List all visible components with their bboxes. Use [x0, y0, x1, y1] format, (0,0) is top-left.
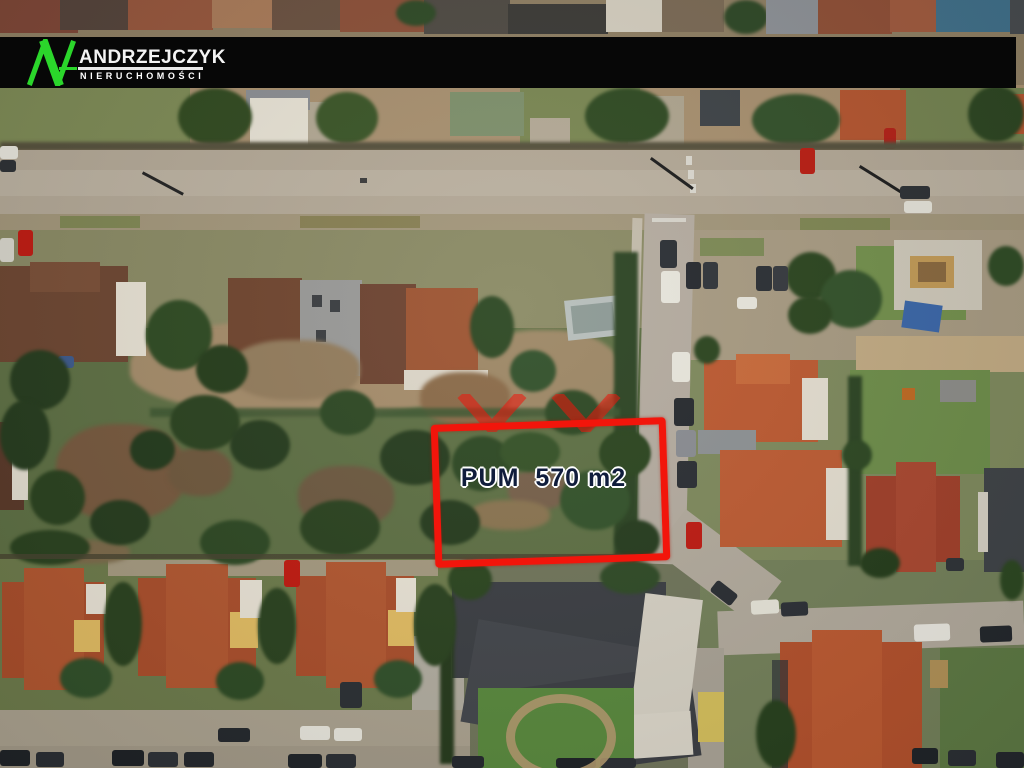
roof [508, 4, 608, 34]
skylight [330, 300, 340, 312]
tree [300, 500, 380, 555]
tree [788, 296, 832, 334]
roof-dark [984, 468, 1024, 572]
tree [842, 440, 872, 470]
car [912, 748, 938, 764]
path [530, 118, 570, 144]
roof [60, 0, 130, 30]
shed [940, 380, 976, 402]
wall [396, 578, 416, 612]
car [677, 461, 697, 488]
facade [388, 610, 414, 646]
company-subtitle: NIERUCHOMOŚCI [80, 72, 204, 81]
car [703, 262, 718, 289]
car [676, 430, 696, 457]
car [686, 522, 702, 549]
roof [812, 630, 882, 768]
car [284, 560, 300, 587]
roof [1010, 0, 1024, 34]
roof [700, 90, 740, 126]
roof [450, 92, 524, 136]
car [36, 752, 64, 767]
tree [104, 582, 142, 666]
car [756, 266, 772, 291]
pallet [930, 660, 948, 688]
aerial-photo [0, 0, 1024, 768]
car [288, 754, 322, 768]
car [18, 230, 33, 256]
roof [936, 0, 1012, 32]
roof [272, 0, 342, 30]
car [674, 398, 694, 426]
tree [1000, 560, 1024, 600]
tree [130, 430, 175, 470]
tarp [901, 300, 942, 332]
tree [510, 350, 556, 392]
roof [840, 90, 906, 140]
roof [250, 98, 308, 146]
car [737, 297, 757, 309]
tree [10, 530, 90, 565]
wall [826, 468, 850, 540]
hedge [848, 376, 862, 566]
car [334, 728, 362, 741]
wall [978, 492, 988, 552]
car [452, 756, 484, 768]
car [0, 238, 14, 262]
tree [600, 560, 660, 594]
wall [86, 584, 106, 614]
tree [30, 470, 85, 525]
car [0, 160, 16, 172]
listing-aerial-screenshot: ANDRZEJCZYK NIERUCHOMOŚCI PUM 570 m2 [0, 0, 1024, 768]
tree [585, 88, 669, 144]
car [148, 752, 178, 767]
pavement [0, 746, 470, 768]
car [686, 262, 701, 289]
car [773, 266, 788, 291]
dirt [168, 448, 232, 496]
path [108, 560, 438, 576]
skylight [312, 295, 322, 307]
sandbox [918, 262, 946, 282]
facade [74, 620, 100, 652]
facade [698, 692, 724, 742]
tree [0, 400, 50, 470]
car [0, 750, 30, 766]
pole [360, 178, 367, 183]
car [900, 186, 930, 199]
car [340, 682, 362, 708]
roof [766, 0, 820, 34]
tree [320, 390, 375, 435]
car [751, 599, 780, 614]
lawn [60, 216, 140, 228]
roof [424, 0, 510, 34]
tree [196, 345, 248, 393]
crosswalk-dash [686, 156, 692, 165]
company-name-underline-accent [59, 67, 77, 70]
company-name-underline [78, 67, 203, 70]
roof [736, 354, 790, 384]
roof [662, 0, 724, 32]
wall [802, 378, 828, 440]
tree [860, 548, 900, 578]
car [661, 271, 680, 303]
company-logo-icon [26, 39, 76, 86]
tree [396, 0, 436, 26]
lawn [700, 238, 764, 256]
wall [116, 282, 146, 356]
tree [414, 584, 456, 666]
tree [178, 88, 252, 146]
roof [890, 0, 938, 32]
car [672, 352, 690, 382]
lawn [800, 218, 890, 230]
roof [896, 462, 936, 572]
car [300, 726, 330, 740]
plot-area-label: PUM 570 m2 [433, 464, 654, 493]
tree [470, 296, 514, 358]
tree [258, 588, 296, 664]
car [660, 240, 677, 268]
car [218, 728, 250, 742]
tree [316, 92, 378, 144]
roof [606, 0, 664, 32]
car [996, 752, 1024, 768]
car [800, 148, 815, 174]
car [914, 623, 951, 641]
tree [756, 700, 796, 768]
car [948, 750, 976, 766]
roof [128, 0, 213, 30]
tree [60, 658, 112, 698]
car [946, 558, 964, 571]
roof [818, 0, 892, 34]
car [781, 601, 809, 616]
tree [374, 660, 422, 698]
car [112, 750, 144, 766]
car [184, 752, 214, 767]
tree [216, 662, 264, 700]
tree [988, 246, 1024, 286]
lawn [0, 88, 190, 148]
tree [752, 94, 840, 146]
tree [90, 500, 150, 545]
greenhouse [571, 302, 616, 334]
tree [694, 336, 720, 364]
tree [230, 420, 290, 470]
tree [724, 0, 768, 34]
roof [212, 0, 274, 28]
lane-dash [652, 218, 686, 222]
tree [968, 86, 1024, 142]
roof [166, 564, 228, 688]
car [980, 625, 1013, 642]
car [326, 754, 356, 768]
crate [902, 388, 915, 400]
car [904, 201, 932, 213]
roof [720, 450, 842, 547]
lawn [300, 216, 420, 228]
company-name: ANDRZEJCZYK [79, 48, 226, 67]
roof [30, 262, 100, 292]
sand [856, 336, 1024, 372]
brand-banner: ANDRZEJCZYK NIERUCHOMOŚCI [0, 37, 1016, 88]
crosswalk-dash [688, 170, 694, 179]
car [0, 146, 18, 159]
